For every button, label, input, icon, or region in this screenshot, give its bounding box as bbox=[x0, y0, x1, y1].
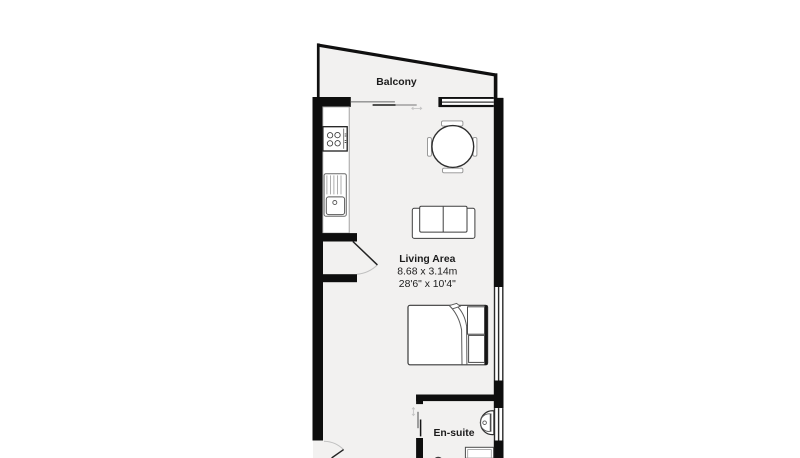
svg-text:28'6" x 10'4": 28'6" x 10'4" bbox=[399, 279, 456, 290]
svg-text:En-suite: En-suite bbox=[434, 428, 475, 439]
svg-text:Living Area: Living Area bbox=[399, 254, 455, 265]
svg-text:Balcony: Balcony bbox=[376, 77, 417, 88]
svg-text:8.68 x 3.14m: 8.68 x 3.14m bbox=[397, 266, 457, 277]
